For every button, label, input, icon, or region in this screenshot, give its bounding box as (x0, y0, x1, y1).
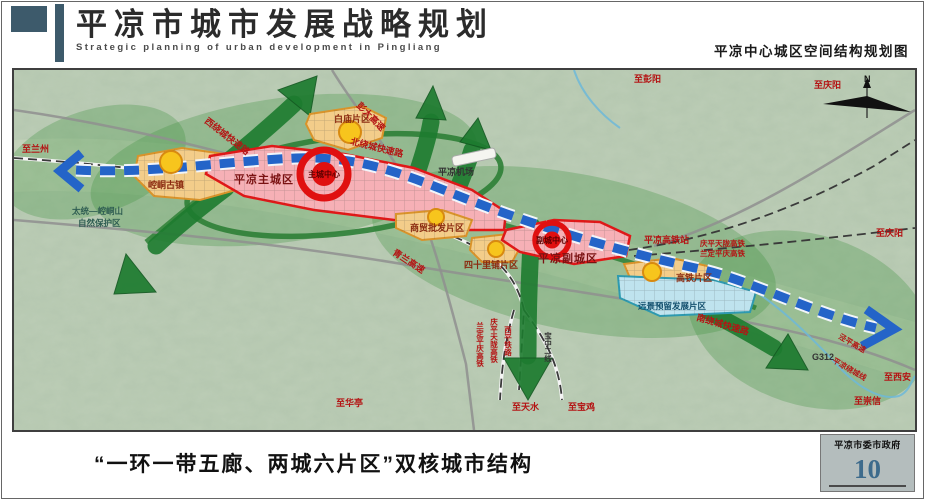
label-zone-sishilipu: 四十里铺片区 (464, 259, 518, 270)
page-number-underline: 10 (829, 453, 906, 487)
label-zone-kongtong: 崆峒古镇 (148, 179, 184, 190)
label-hsr-station: 平凉高铁站 (644, 234, 689, 245)
agency-label: 平凉市委市政府 (821, 435, 914, 451)
label-to-huating: 至华亭 (336, 397, 363, 408)
map-title: 平凉中心城区空间结构规划图 (714, 40, 909, 60)
label-to-qingyang-top: 至庆阳 (814, 79, 841, 90)
label-to-baoji: 至宝鸡 (568, 401, 595, 412)
label-to-qingyang-east: 至庆阳 (876, 227, 903, 238)
header-deco-square (11, 6, 47, 32)
label-zone-sub-city: 平凉副城区 (538, 251, 598, 265)
page-number: 10 (829, 453, 906, 485)
label-nature-reserve-1: 太统—崆峒山 (71, 206, 123, 216)
header-deco-bar (55, 4, 64, 62)
label-zone-gaotie: 高铁片区 (676, 272, 712, 283)
label-zone-yuanjing: 远景预留发展片区 (638, 301, 707, 311)
page-title: 平凉市城市发展战略规划 (76, 8, 494, 42)
label-main-center: 主城中心 (308, 169, 340, 179)
structure-caption: “一环一带五廊、两城六片区”双核城市结构 (94, 448, 533, 478)
label-v-xiping-rail: 西平铁路 (503, 326, 512, 358)
label-v-qptl: 庆平天陇高铁 (489, 317, 498, 365)
label-g312: G312 (812, 352, 834, 362)
label-v-ldpq: 兰定平庆高铁 (475, 321, 484, 369)
label-airport: 平凉机场 (438, 166, 474, 177)
footer: “一环一带五廊、两城六片区”双核城市结构 平凉市委市政府 10 (12, 432, 917, 494)
label-v-baozhong: 宝中二线 (543, 331, 552, 364)
page: 平凉市城市发展战略规划 Strategic planning of urban … (1, 1, 924, 499)
page-subtitle-en: Strategic planning of urban development … (76, 42, 494, 53)
label-hsr-qptl: 庆平天陇高铁 (699, 238, 745, 248)
label-sub-center: 副城中心 (536, 235, 568, 245)
node-gaotie (643, 263, 661, 281)
label-hsr-ldpq: 兰定平庆高铁 (700, 248, 745, 258)
map-canvas: N 至兰州 至彭阳 至庆阳 至庆阳 至西安 至崇信 至华亭 至天水 至宝鸡 太统… (14, 70, 915, 430)
label-to-xian: 至西安 (884, 371, 911, 382)
label-nature-reserve-2: 自然保护区 (78, 218, 121, 228)
label-zone-main-city: 平凉主城区 (234, 172, 294, 186)
title-block: 平凉市城市发展战略规划 Strategic planning of urban … (76, 8, 494, 53)
label-to-tianshui: 至天水 (512, 401, 540, 412)
label-to-pengyang: 至彭阳 (634, 73, 661, 84)
planning-map: N 至兰州 至彭阳 至庆阳 至庆阳 至西安 至崇信 至华亭 至天水 至宝鸡 太统… (12, 68, 917, 432)
node-kongtong (160, 151, 182, 173)
label-to-lanzhou: 至兰州 (22, 143, 49, 154)
node-sishilipu (488, 241, 504, 257)
label-zone-shangmao: 商贸批发片区 (410, 222, 464, 233)
page-number-box: 平凉市委市政府 10 (820, 434, 915, 492)
label-to-chongxin: 至崇信 (854, 395, 881, 406)
header: 平凉市城市发展战略规划 Strategic planning of urban … (2, 2, 923, 68)
